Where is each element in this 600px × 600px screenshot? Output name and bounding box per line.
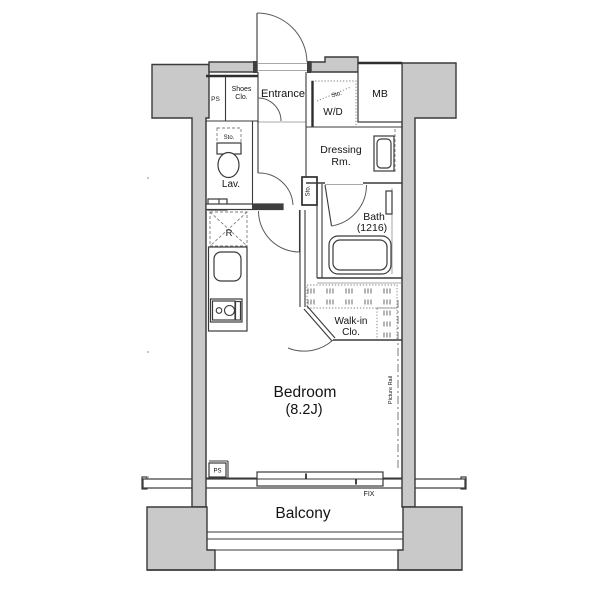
walkin-shelf-right bbox=[377, 308, 397, 340]
room-label-bath-2: (1216) bbox=[357, 222, 387, 234]
room-label-ps-bottom: PS bbox=[213, 469, 221, 475]
room-label-dressing-1: Dressing bbox=[320, 144, 362, 156]
kitchen bbox=[209, 247, 248, 331]
label-fix-window: FIX bbox=[364, 491, 375, 498]
label-lav-sto: Sto. bbox=[224, 135, 235, 141]
room-label-shoes-2: Clo. bbox=[235, 94, 248, 101]
room-label-shoes-1: Shoes bbox=[232, 86, 252, 93]
label-picture-rail: Picture Rail bbox=[388, 376, 394, 404]
room-label-walkin-2: Clo. bbox=[342, 327, 360, 338]
room-label-mb: MB bbox=[372, 88, 388, 100]
bathtub-inner bbox=[333, 240, 387, 270]
walkin-shelf-top bbox=[307, 285, 397, 308]
room-label-ps-top: PS bbox=[211, 96, 220, 103]
room-label-bedroom-2: (8.2J) bbox=[285, 402, 322, 418]
entrance-door-jamb-right bbox=[307, 61, 311, 73]
room-label-lav: Lav. bbox=[222, 179, 240, 190]
entrance-door-jamb-left bbox=[253, 61, 257, 73]
room-label-dressing-2: Rm. bbox=[331, 156, 350, 168]
room-label-entrance: Entrance bbox=[261, 88, 305, 100]
floor-plan-drawing: MB PS Shoes Clo. Entrance Sto. bbox=[0, 0, 600, 600]
floor-plan: MB PS Shoes Clo. Entrance Sto. bbox=[0, 0, 600, 600]
pillar-bottom-left bbox=[147, 507, 215, 570]
room-label-balcony: Balcony bbox=[275, 505, 330, 522]
kitchen-sink bbox=[214, 252, 241, 281]
room-label-bedroom-1: Bedroom bbox=[274, 384, 337, 401]
room-label-wd: W/D bbox=[323, 107, 342, 118]
bath-shelf bbox=[386, 191, 392, 214]
meter-box: MB bbox=[358, 63, 402, 122]
toilet-bowl bbox=[218, 153, 239, 178]
room-label-walkin-1: Walk-in bbox=[335, 316, 368, 327]
room-label-fridge: R bbox=[226, 228, 233, 239]
pillar-bottom-right bbox=[398, 507, 462, 570]
washbasin-bowl bbox=[377, 139, 391, 168]
wall-top-left-band bbox=[209, 62, 257, 72]
stove-grill bbox=[236, 302, 241, 321]
label-hall-sto: Sto. bbox=[306, 185, 312, 196]
